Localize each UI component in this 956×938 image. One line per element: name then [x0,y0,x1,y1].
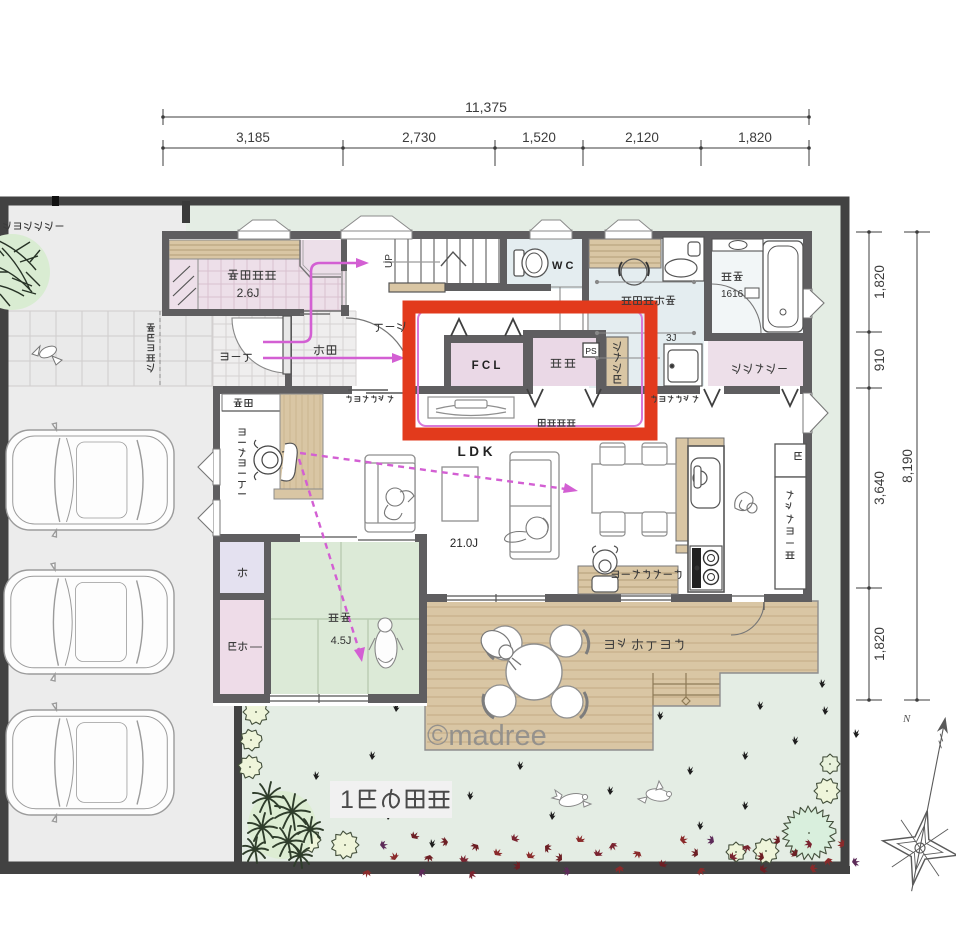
svg-text:2,120: 2,120 [625,130,659,145]
svg-text:1616: 1616 [721,289,744,300]
svg-text:W C: W C [552,260,573,272]
svg-text:N: N [902,713,911,725]
svg-text:L D K: L D K [457,444,492,459]
svg-text:4.5J: 4.5J [331,635,352,647]
svg-text:2,730: 2,730 [402,130,436,145]
svg-text:3,640: 3,640 [872,471,887,505]
svg-text:1,820: 1,820 [872,265,887,299]
svg-text:1,820: 1,820 [738,130,772,145]
svg-text:21.0J: 21.0J [450,538,478,550]
svg-text:1,820: 1,820 [872,627,887,661]
svg-text:1: 1 [340,786,354,814]
svg-text:2.6J: 2.6J [237,286,260,300]
svg-text:3,185: 3,185 [236,130,270,145]
svg-text:PS: PS [585,346,597,356]
svg-text:3J: 3J [666,333,677,344]
svg-text:F C L: F C L [472,360,501,372]
svg-text:1,520: 1,520 [522,130,556,145]
svg-text:UP: UP [384,254,395,268]
svg-text:©madree: ©madree [427,720,547,752]
svg-text:910: 910 [872,349,887,372]
svg-text:11,375: 11,375 [465,99,507,115]
svg-text:8,190: 8,190 [900,449,915,483]
